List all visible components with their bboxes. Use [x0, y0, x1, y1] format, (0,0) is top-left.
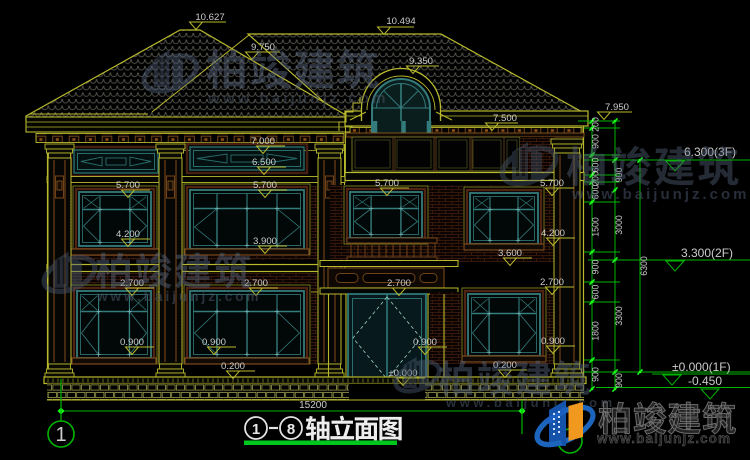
svg-text:www.baijunjz.com: www.baijunjz.com	[207, 90, 389, 107]
svg-text:9.750: 9.750	[251, 42, 275, 53]
svg-text:6300: 6300	[639, 256, 649, 276]
svg-text:4.200: 4.200	[541, 228, 565, 239]
svg-text:200: 200	[591, 171, 601, 186]
svg-text:8: 8	[287, 421, 295, 438]
svg-text:3.300(2F): 3.300(2F)	[681, 246, 733, 260]
svg-text:4.200: 4.200	[116, 229, 140, 240]
svg-text:600: 600	[591, 285, 601, 300]
svg-text:0.900: 0.900	[541, 336, 565, 347]
svg-text:3.600: 3.600	[498, 248, 522, 259]
svg-text:900: 900	[614, 373, 624, 388]
svg-text:7.950: 7.950	[605, 102, 629, 113]
svg-text:0.200: 0.200	[221, 361, 245, 372]
svg-text:3.900: 3.900	[253, 236, 277, 247]
svg-text:9.350: 9.350	[409, 56, 433, 67]
svg-text:www.baijunjz.com: www.baijunjz.com	[596, 431, 731, 446]
svg-text:10.627: 10.627	[195, 12, 224, 23]
svg-text:±0.000(1F): ±0.000(1F)	[672, 360, 731, 374]
svg-text:www.baijunjz.com: www.baijunjz.com	[571, 186, 749, 203]
svg-text:www.baijunjz.com: www.baijunjz.com	[96, 289, 262, 304]
svg-text:1500: 1500	[591, 217, 601, 237]
svg-text:5.700: 5.700	[253, 180, 277, 191]
svg-text:5.700: 5.700	[375, 178, 399, 189]
svg-text:15200: 15200	[299, 400, 327, 411]
svg-text:3300: 3300	[614, 306, 624, 326]
svg-text:0.900: 0.900	[202, 337, 226, 348]
svg-text:5.700: 5.700	[540, 178, 564, 189]
svg-text:1: 1	[55, 424, 66, 446]
svg-text:0.900: 0.900	[413, 337, 437, 348]
svg-text:-0.450: -0.450	[688, 374, 722, 388]
svg-text:2.700: 2.700	[387, 278, 411, 289]
svg-text:7.000: 7.000	[251, 136, 275, 147]
svg-text:1: 1	[252, 421, 260, 438]
svg-text:900: 900	[591, 260, 601, 275]
svg-text:0.900: 0.900	[120, 337, 144, 348]
svg-text:10.494: 10.494	[386, 16, 416, 27]
svg-text:200: 200	[591, 117, 601, 132]
svg-text:6.500: 6.500	[252, 157, 276, 168]
svg-text:2.700: 2.700	[540, 277, 564, 288]
svg-text:5.700: 5.700	[116, 180, 140, 191]
svg-text:7.500: 7.500	[493, 113, 517, 124]
svg-text:3000: 3000	[614, 215, 624, 235]
svg-text:1800: 1800	[591, 321, 601, 341]
svg-text:900: 900	[591, 367, 601, 382]
